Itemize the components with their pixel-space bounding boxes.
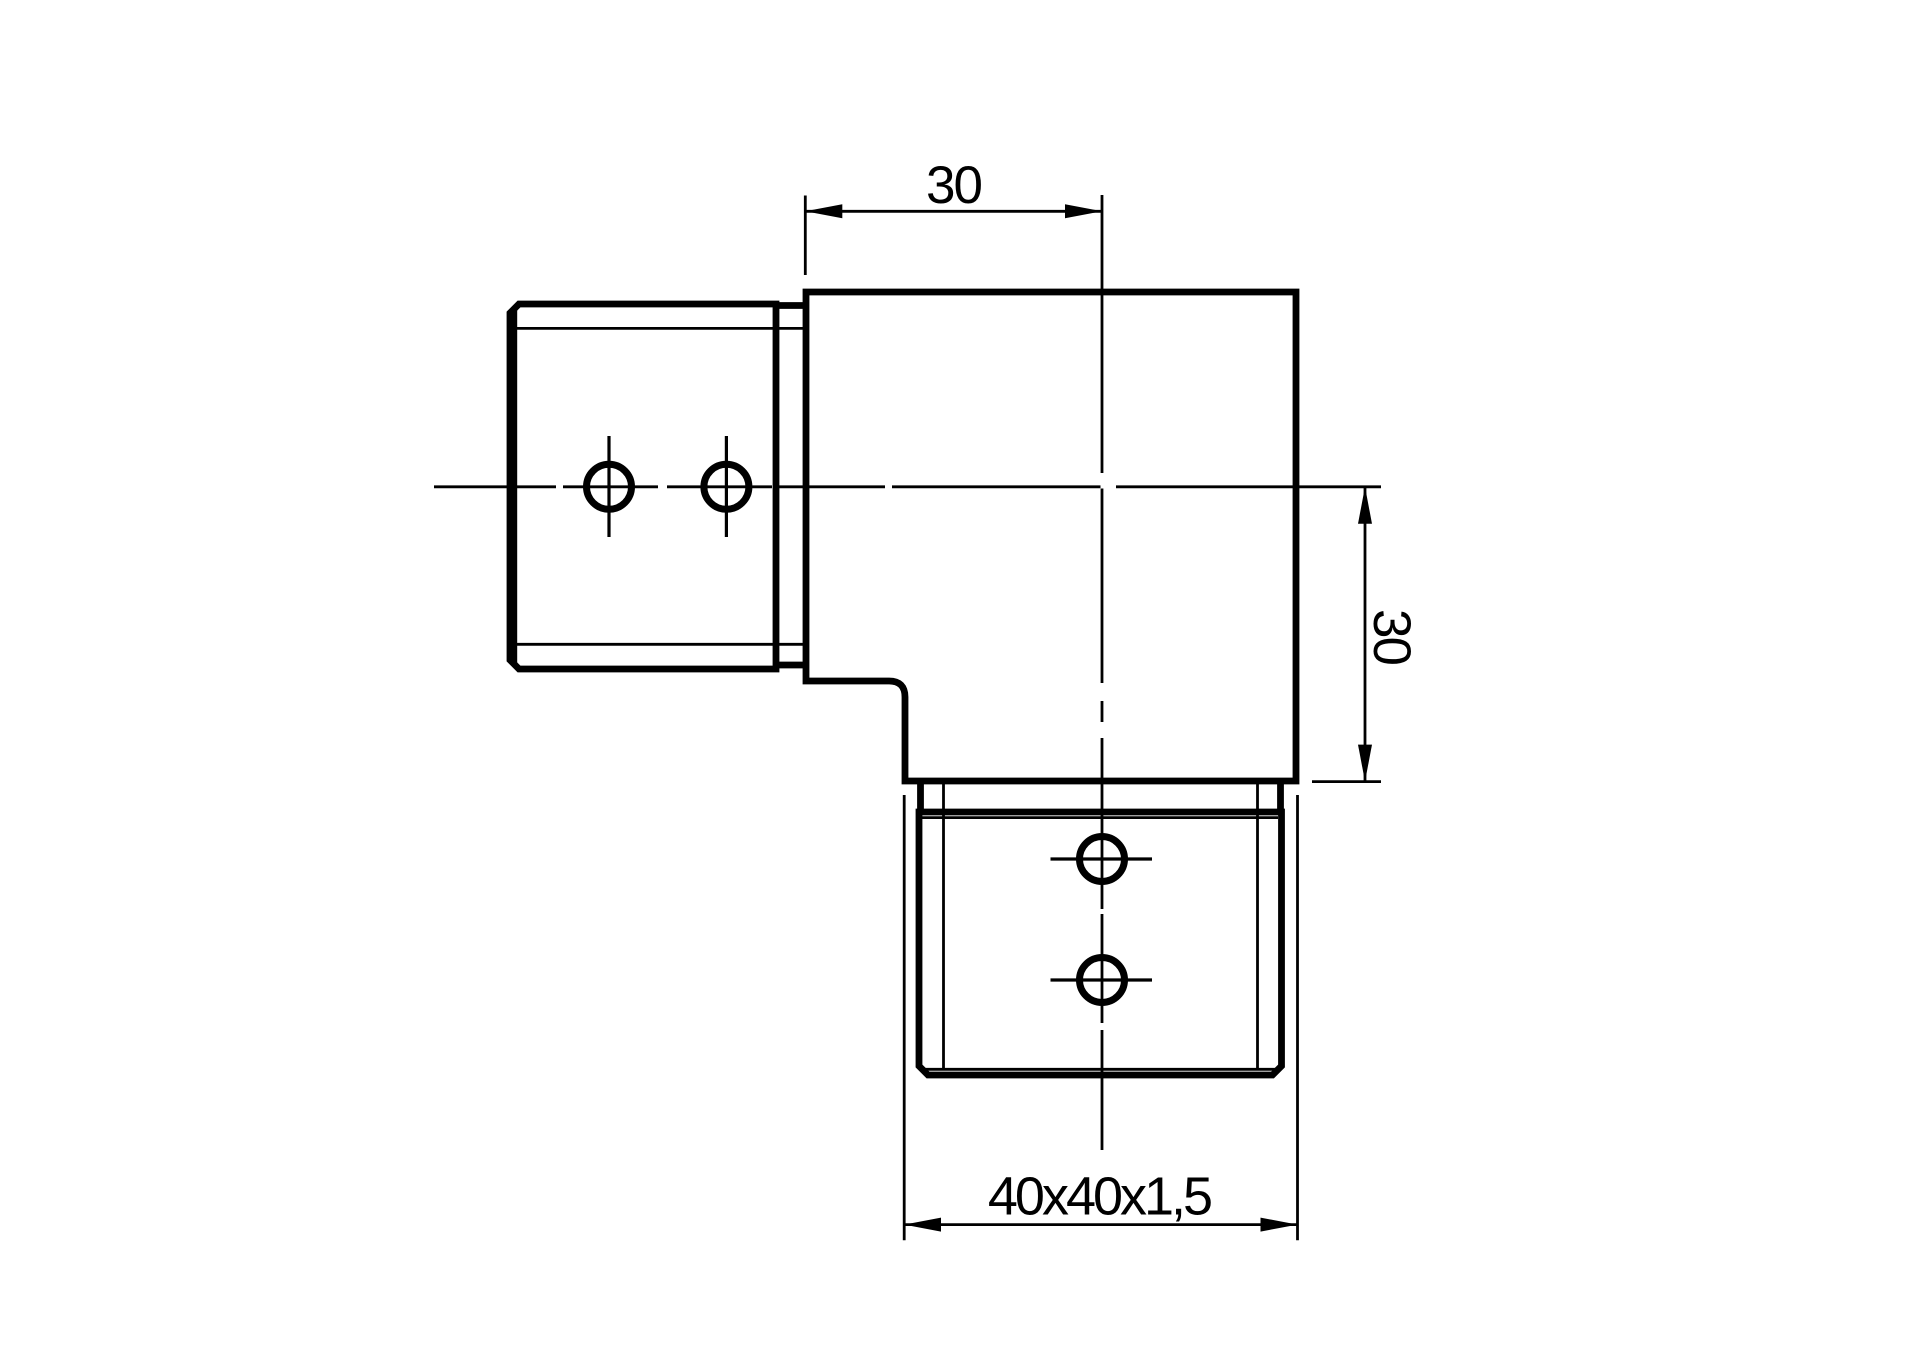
svg-text:30: 30 bbox=[926, 156, 981, 215]
svg-text:30: 30 bbox=[1362, 609, 1421, 664]
svg-text:40x40x1,5: 40x40x1,5 bbox=[988, 1167, 1211, 1227]
